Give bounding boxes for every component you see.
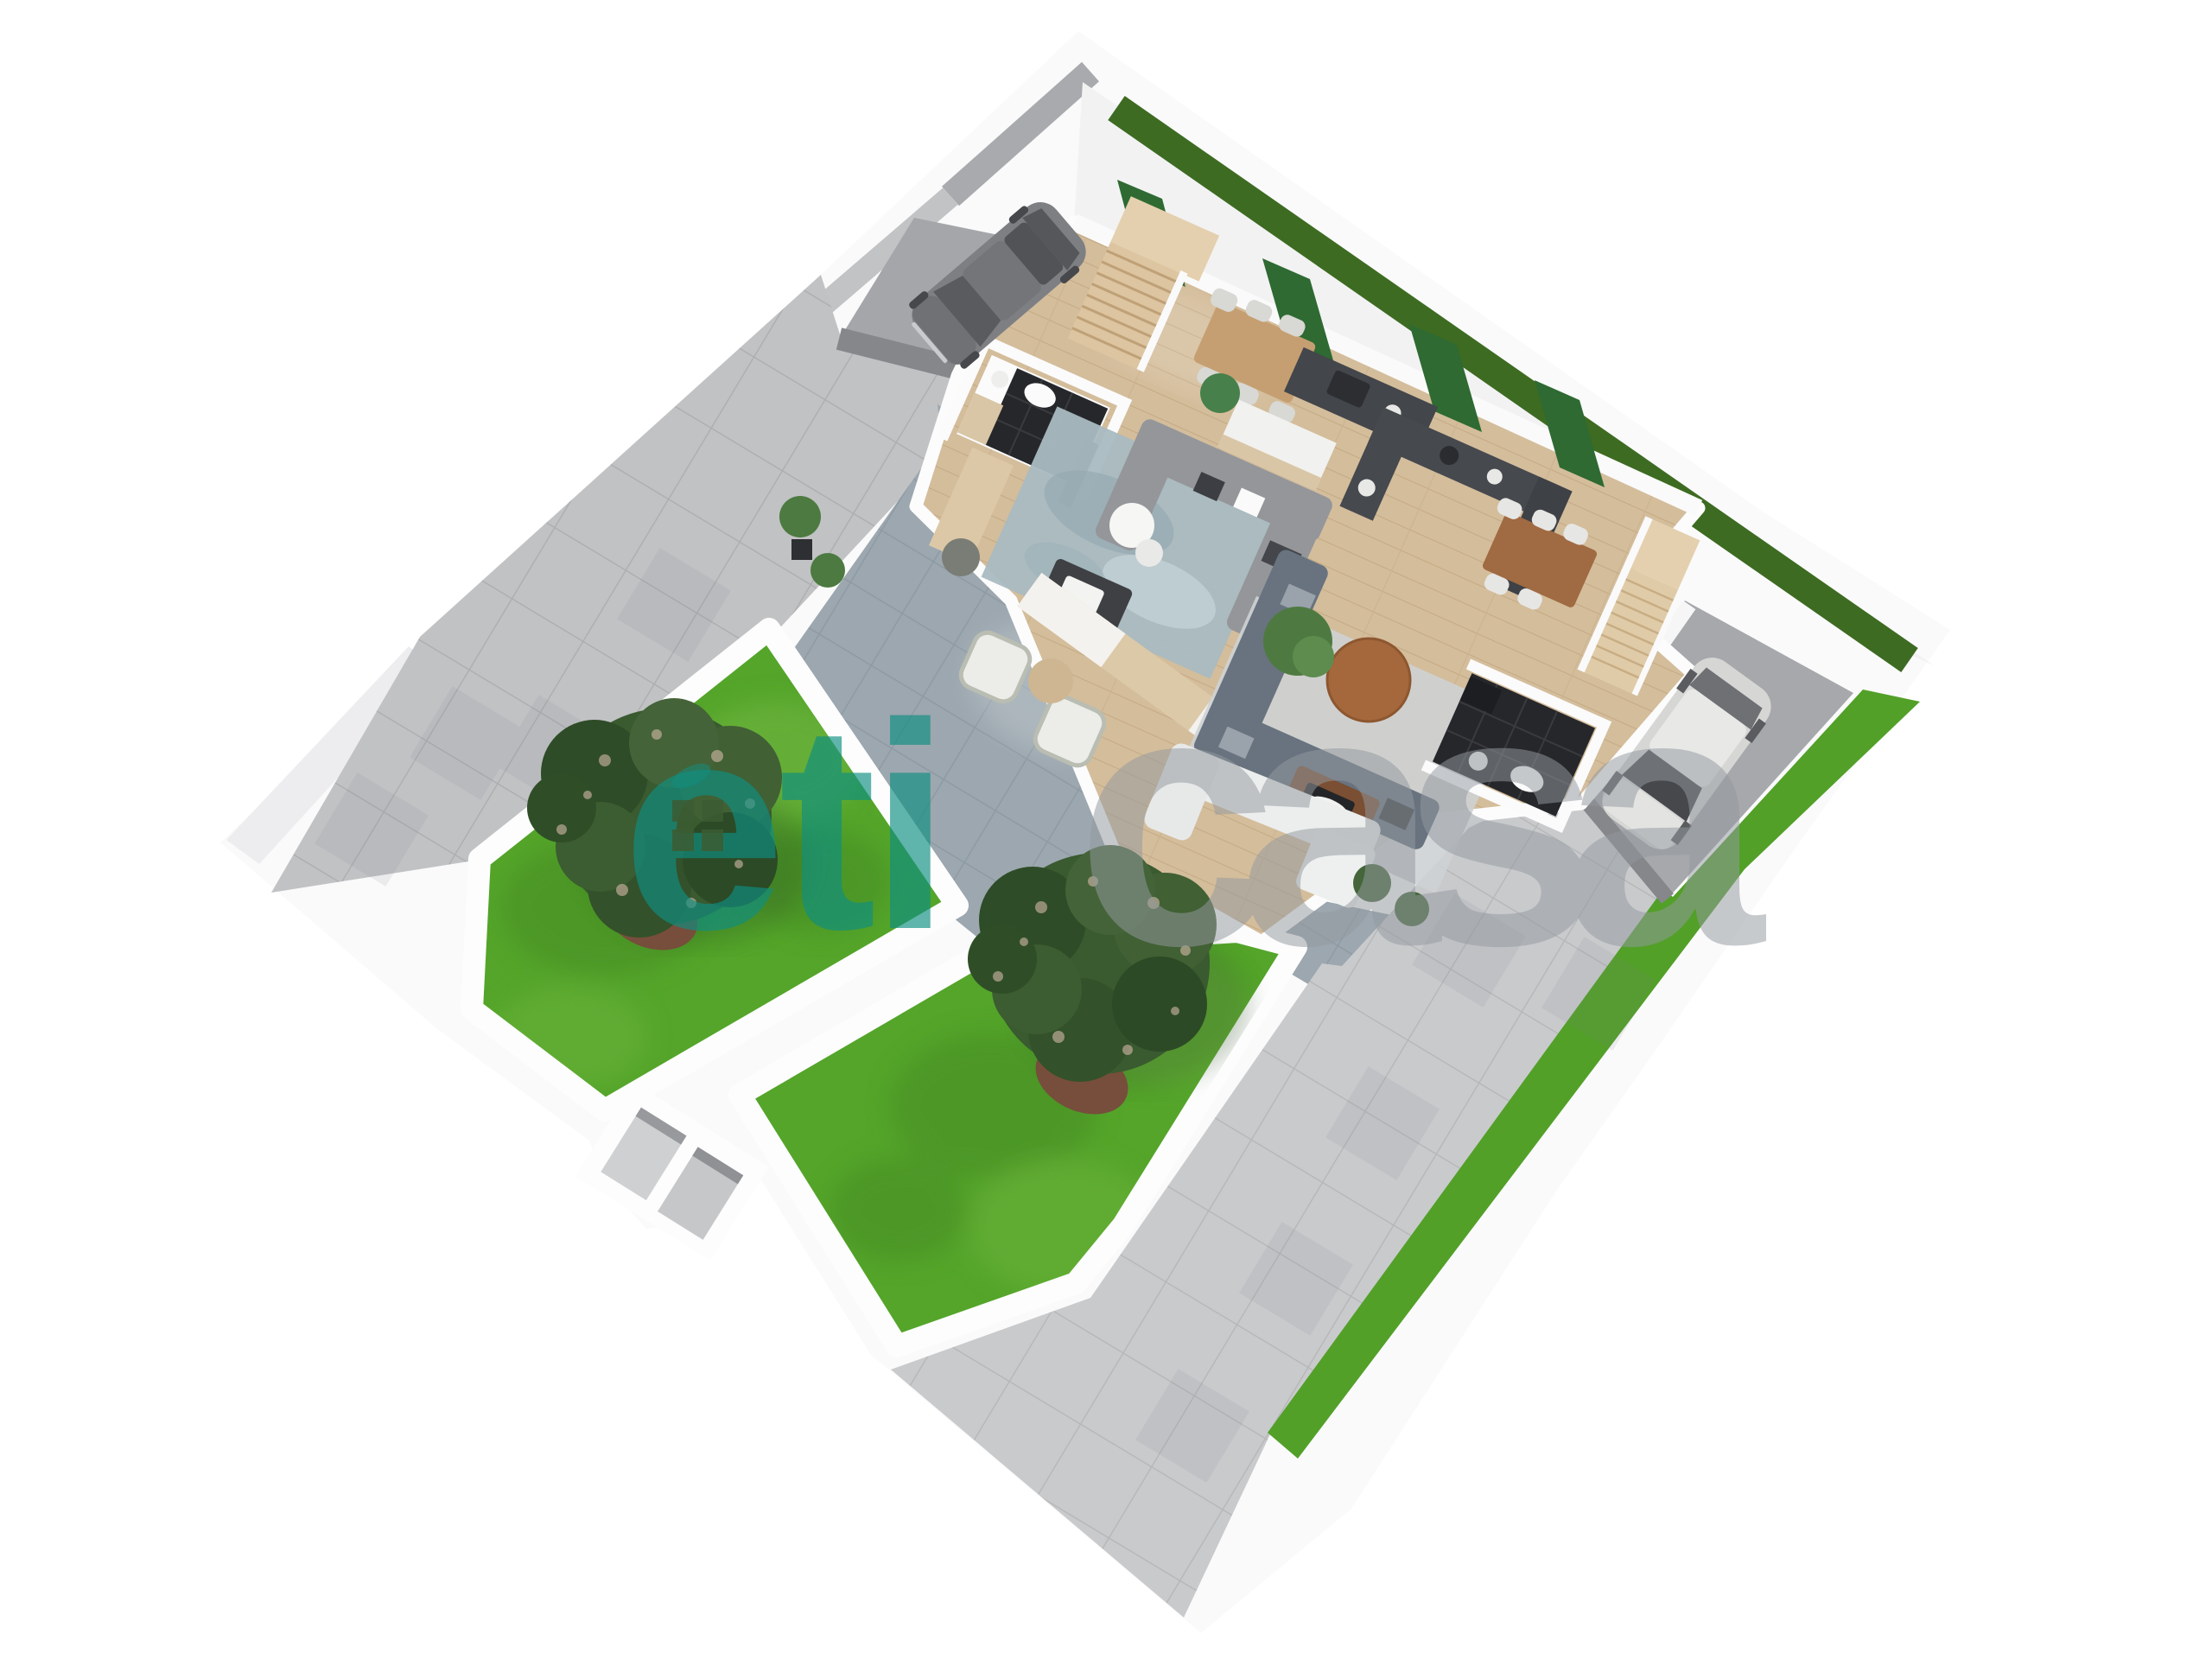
svg-text:eti: eti (622, 663, 944, 991)
svg-text:casa: casa (1076, 616, 1766, 1021)
